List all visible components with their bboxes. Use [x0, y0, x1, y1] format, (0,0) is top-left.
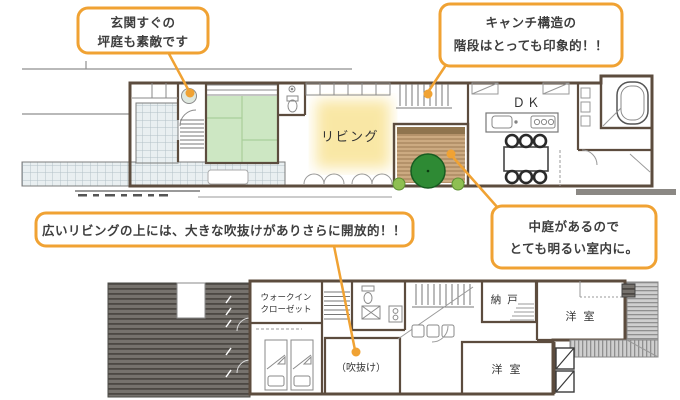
leader-dot-stairs: [424, 90, 433, 99]
skylight-hatches: [556, 348, 574, 392]
western-room-bottom: 洋 室: [462, 342, 553, 394]
bathroom: [601, 76, 652, 128]
floorplan-svg: リビング ＤＫ: [0, 0, 680, 400]
balcony-notch: [177, 283, 205, 318]
floor2-plan: ウォークイン クローゼット （吹抜け）: [108, 281, 658, 397]
wic-label: ウォークイン: [260, 292, 311, 302]
right-wing: [560, 150, 650, 186]
roof-areas: [554, 282, 658, 394]
floor1-plan: リビング ＤＫ: [22, 61, 676, 197]
callout-entrance-line2: 坪庭も素敵です: [97, 34, 188, 49]
wall-braces: [472, 83, 569, 94]
dk-label: ＤＫ: [512, 96, 541, 110]
bush-icon: [452, 178, 464, 190]
callout-stairs-line2: 階段はとっても印象的！！: [454, 38, 608, 53]
floorplan-page: リビング ＤＫ: [0, 0, 680, 400]
western-room-top-label: 洋 室: [565, 309, 596, 323]
callout-entrance-line1: 玄関すぐの: [110, 15, 175, 30]
washroom: [581, 88, 590, 126]
western-room-bottom-label: 洋 室: [491, 362, 522, 376]
courtyard: [393, 124, 468, 190]
callout-openness-line1: 広いリビングの上には、大きな吹抜けがありさらに開放的！！: [42, 223, 406, 238]
callout-courtyard-line2: とても明るい室内に。: [509, 241, 638, 256]
entry-tile-court: [136, 103, 178, 163]
leader-stairs: [428, 65, 446, 92]
wic-label: クローゼット: [260, 304, 311, 314]
toilet-room-1f: [287, 86, 298, 112]
callout-courtyard-line1: 中庭があるので: [528, 219, 619, 234]
callout-stairs-box: [440, 4, 622, 66]
callout-stairs-line1: キャンチ構造の: [485, 15, 576, 30]
utility-room-2f: [352, 281, 405, 330]
living-room-label: リビング: [321, 129, 379, 144]
bush-icon: [393, 178, 405, 190]
genkan-stairs: [180, 120, 204, 148]
tatami-room: [206, 85, 278, 162]
western-room-top: 洋 室: [537, 281, 622, 340]
void-room: （吹抜け）: [325, 338, 400, 394]
leader-dot-openness: [352, 348, 361, 357]
callout-courtyard-box: [492, 206, 656, 268]
roof-chimney: [622, 284, 635, 297]
leader-dot-entrance: [186, 89, 195, 98]
patio-doors: [304, 174, 392, 184]
leader-dot-courtyard: [447, 150, 456, 159]
storage-room: 納 戸: [482, 281, 536, 322]
ground-marks: [75, 189, 676, 197]
stairs-2f: [412, 284, 474, 307]
dk-room: ＤＫ: [472, 83, 569, 183]
closet-row: [306, 83, 390, 95]
nando-label: 納 戸: [491, 293, 519, 306]
walk-in-closet: ウォークイン クローゼット: [250, 281, 322, 329]
bedroom-2f: [265, 323, 322, 394]
bathtub-icon: [617, 82, 648, 124]
kitchen-island: [486, 113, 558, 132]
void-label: （吹抜け）: [336, 361, 386, 374]
dining-table: [504, 147, 548, 171]
